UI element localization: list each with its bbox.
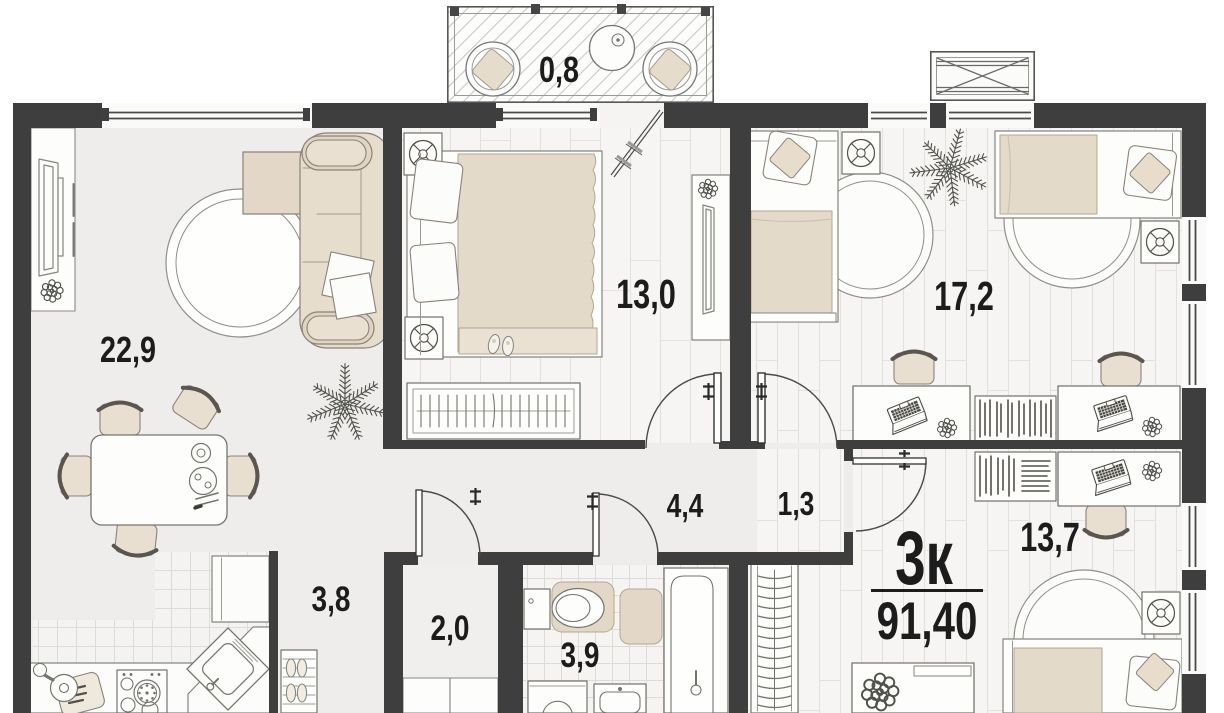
svg-text:3,8: 3,8 <box>312 579 351 619</box>
svg-text:3к: 3к <box>895 516 954 601</box>
svg-text:17,2: 17,2 <box>934 273 994 319</box>
svg-text:22,9: 22,9 <box>100 329 156 370</box>
svg-text:13,0: 13,0 <box>616 271 676 317</box>
svg-text:2,0: 2,0 <box>431 608 470 648</box>
svg-text:1,3: 1,3 <box>778 486 815 522</box>
svg-text:0,8: 0,8 <box>539 49 579 90</box>
svg-text:13,7: 13,7 <box>1020 514 1080 560</box>
svg-text:4,4: 4,4 <box>667 488 704 524</box>
svg-text:91,40: 91,40 <box>877 591 978 651</box>
svg-text:3,9: 3,9 <box>561 635 600 675</box>
